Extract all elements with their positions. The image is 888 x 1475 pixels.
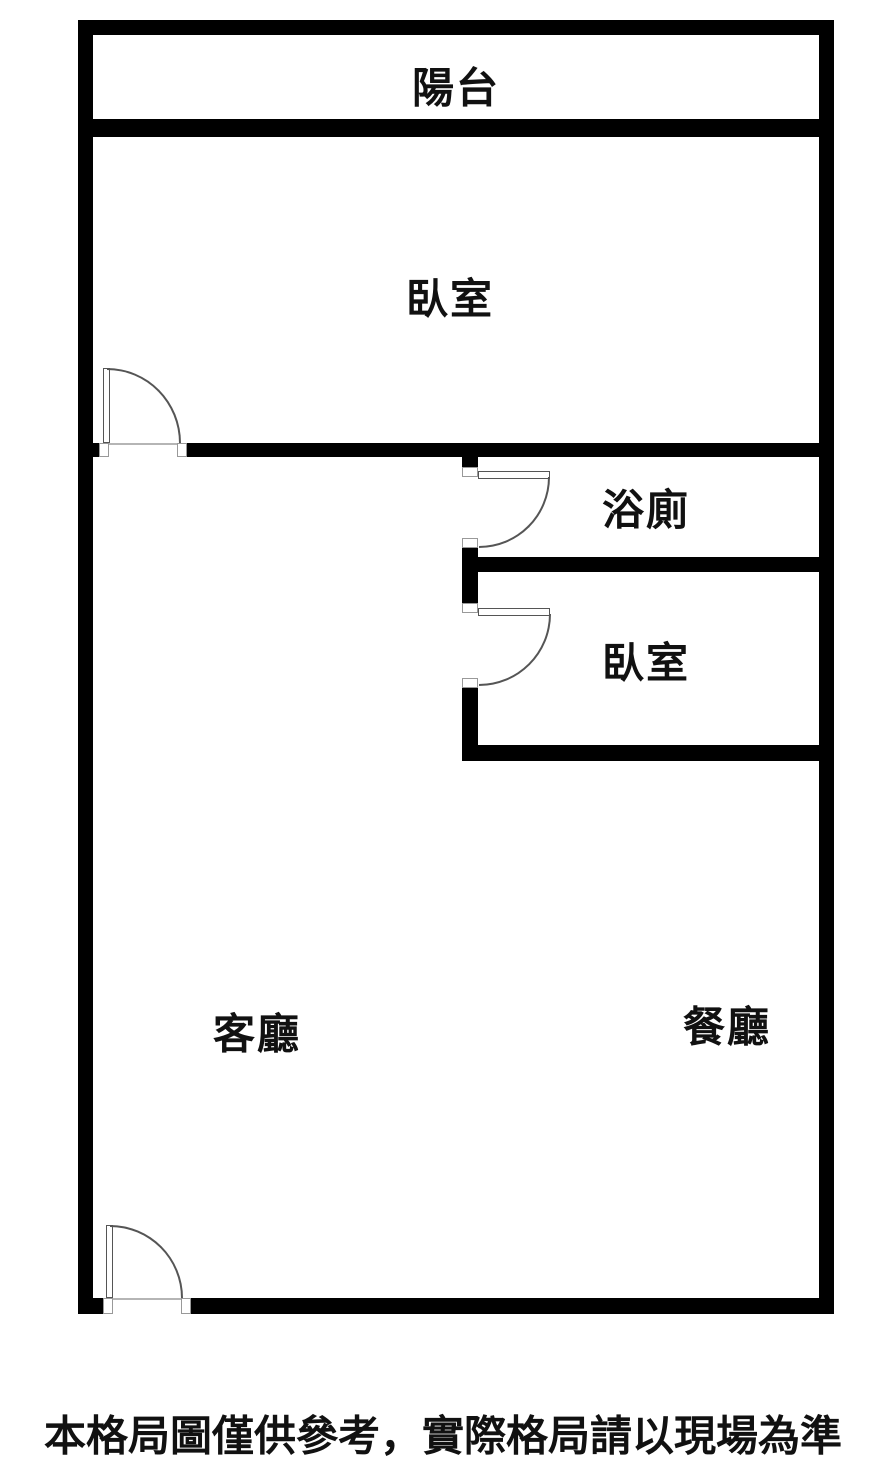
bedroom-top-door-jamb-left — [99, 443, 109, 457]
wall-bathroom-bottom — [462, 557, 834, 572]
bedroom-top-door-threshold — [99, 443, 187, 445]
bedroom-top-door-jamb-right — [177, 443, 187, 457]
wall-interior-vertical-upper — [462, 443, 478, 467]
entry-door-arc — [110, 1225, 183, 1298]
wall-bedroom-top-bottom-left-stub — [78, 443, 99, 457]
wall-outer-right — [819, 20, 834, 1314]
wall-outer-bottom-main — [191, 1298, 834, 1314]
living-room-label: 客廳 — [213, 1001, 301, 1062]
bedroom-top-door-arc — [107, 368, 181, 443]
bathroom-label: 浴廁 — [602, 477, 690, 538]
entry-door-jamb-left — [103, 1298, 113, 1314]
bedroom-right-door-jamb-bottom — [462, 678, 478, 688]
wall-balcony-bottom — [78, 119, 834, 137]
disclaimer-caption: 本格局圖僅供參考，實際格局請以現場為準 — [44, 1403, 842, 1464]
bedroom-top-label: 臥室 — [406, 266, 494, 327]
balcony-label: 陽台 — [412, 55, 500, 116]
wall-outer-top — [78, 20, 834, 35]
dining-room-label: 餐廳 — [683, 994, 771, 1055]
bathroom-door-arc — [479, 477, 550, 548]
bedroom-right-door-jamb-top — [462, 603, 478, 613]
wall-outer-bottom-left-stub — [78, 1298, 103, 1314]
floor-plan: 陽台 臥室 浴廁 臥室 客廳 餐廳 本格局圖僅供參考，實際格局請以現場為準 — [0, 0, 888, 1475]
bedroom-right-door-arc — [479, 614, 551, 686]
entry-door-jamb-right — [181, 1298, 191, 1314]
bathroom-door-jamb-top — [462, 467, 478, 477]
bathroom-door-jamb-bottom — [462, 538, 478, 548]
entry-door-threshold — [103, 1298, 191, 1300]
wall-outer-left — [78, 20, 93, 1314]
wall-bedroom-right-bottom — [462, 745, 834, 761]
wall-bedroom-top-bottom-main — [187, 443, 834, 457]
bedroom-right-label: 臥室 — [602, 630, 690, 691]
